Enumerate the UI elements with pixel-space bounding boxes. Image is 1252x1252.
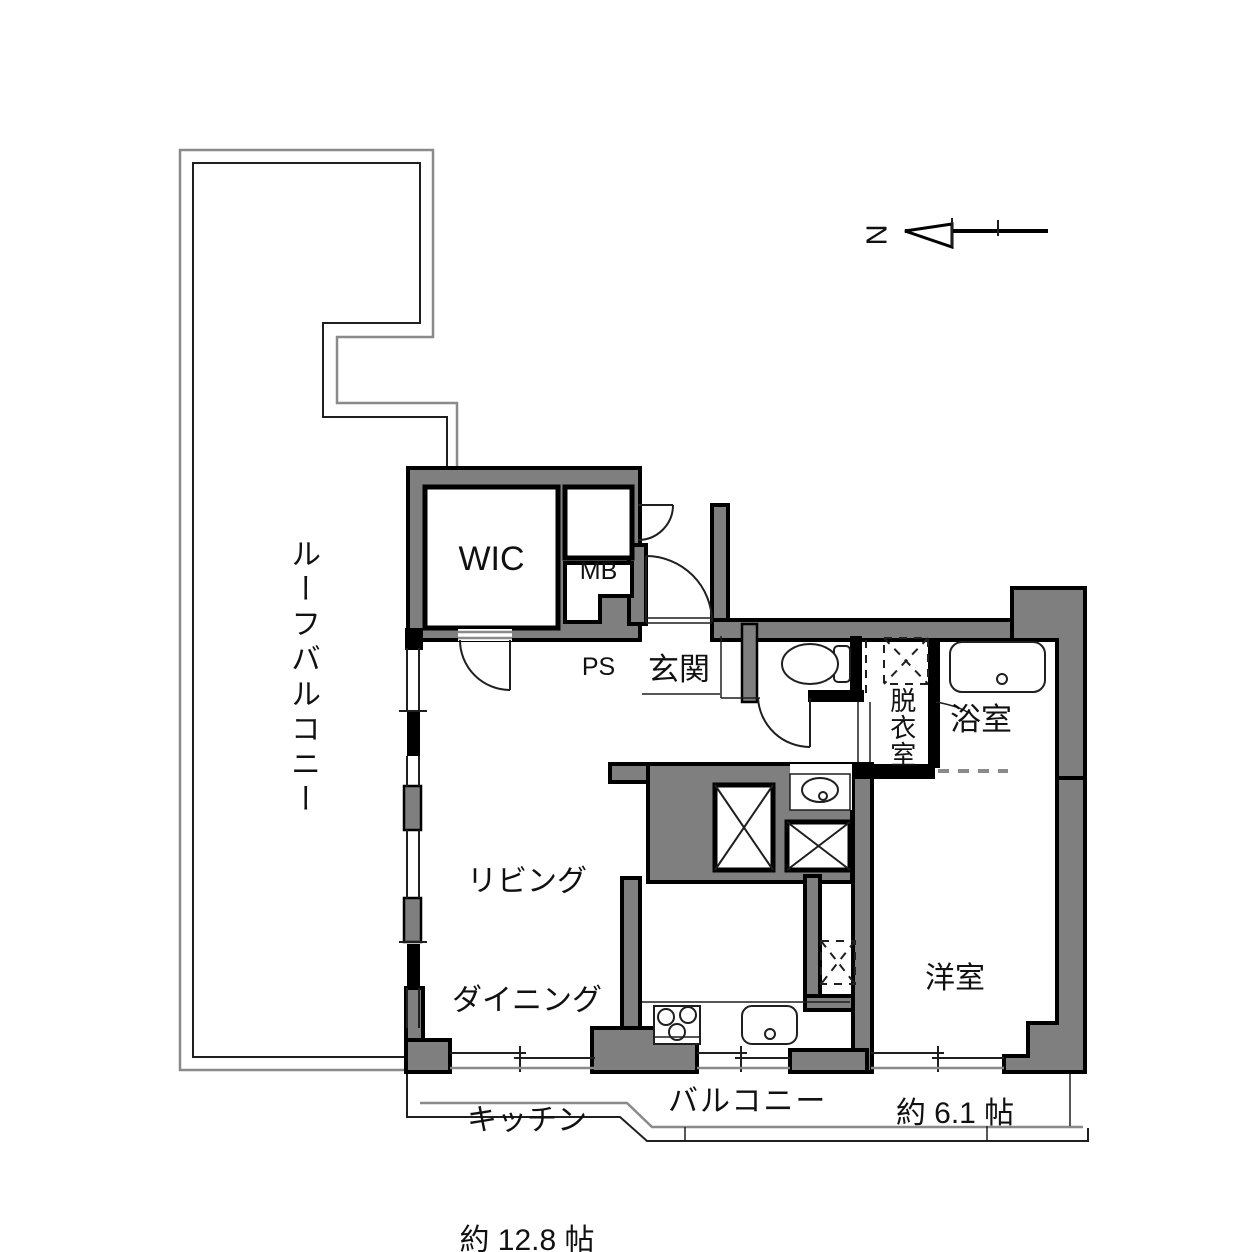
- bathtub: [950, 642, 1045, 692]
- kitchen-sink-icon: [742, 1006, 797, 1044]
- label-ldk-line1: リビング: [424, 862, 630, 902]
- washbasin-drain: [819, 792, 827, 800]
- north-arrow-icon: [905, 218, 1048, 247]
- wall-toilet-right: [850, 636, 862, 702]
- wall-left-pier-dark: [407, 944, 420, 988]
- wall-entry-alcove: [712, 505, 728, 626]
- toilet-icon: [782, 644, 850, 684]
- sink-drain: [765, 1029, 775, 1039]
- toilet-door-arc: [758, 698, 810, 747]
- label-ps: PS: [565, 651, 632, 683]
- north-arrow-head: [905, 224, 952, 247]
- label-western-room: 洋室: [852, 956, 1058, 1001]
- stove-burner: [680, 1007, 696, 1023]
- entry-door-arc: [646, 556, 712, 622]
- label-ldk-line3: キッチン: [424, 1101, 630, 1141]
- label-wic: WIC: [425, 537, 558, 581]
- label-ldk-line2: ダイニング: [424, 981, 630, 1021]
- bathtub-drain: [997, 674, 1007, 684]
- label-bathroom: 浴室: [950, 700, 1012, 740]
- label-ldk-size: 約 12.8 帖: [424, 1221, 630, 1252]
- wall-left-pier-dark: [407, 712, 420, 756]
- wall-left-pier: [404, 786, 421, 830]
- label-roof-balcony: ルーフバルコニー: [283, 538, 322, 818]
- stove-icon: [654, 1006, 700, 1044]
- wall-cap: [405, 628, 423, 650]
- wall-left-pier: [404, 898, 421, 942]
- label-balcony: バルコニー: [668, 1082, 827, 1121]
- floor-plan: ルーフバルコニー WIC MB PS 玄関 脱衣室 浴室 リビング ダイニング …: [0, 0, 1252, 1252]
- wall-toilet-left: [742, 624, 757, 702]
- wic-door-arc: [460, 640, 510, 690]
- stove-burner: [658, 1009, 674, 1025]
- mbps-door-arc: [638, 505, 673, 540]
- washer-space-x: [884, 638, 928, 684]
- toilet-bowl: [782, 644, 838, 684]
- bathtub-icon: [950, 642, 1045, 692]
- wall-fridge-left: [805, 876, 820, 1010]
- label-western-room-size: 約 6.1 帖: [852, 1091, 1058, 1136]
- label-north: N: [860, 224, 898, 245]
- label-genkan: 玄関: [648, 650, 710, 690]
- label-mb: MB: [565, 555, 632, 587]
- label-dressing-room: 脱衣室: [884, 687, 918, 768]
